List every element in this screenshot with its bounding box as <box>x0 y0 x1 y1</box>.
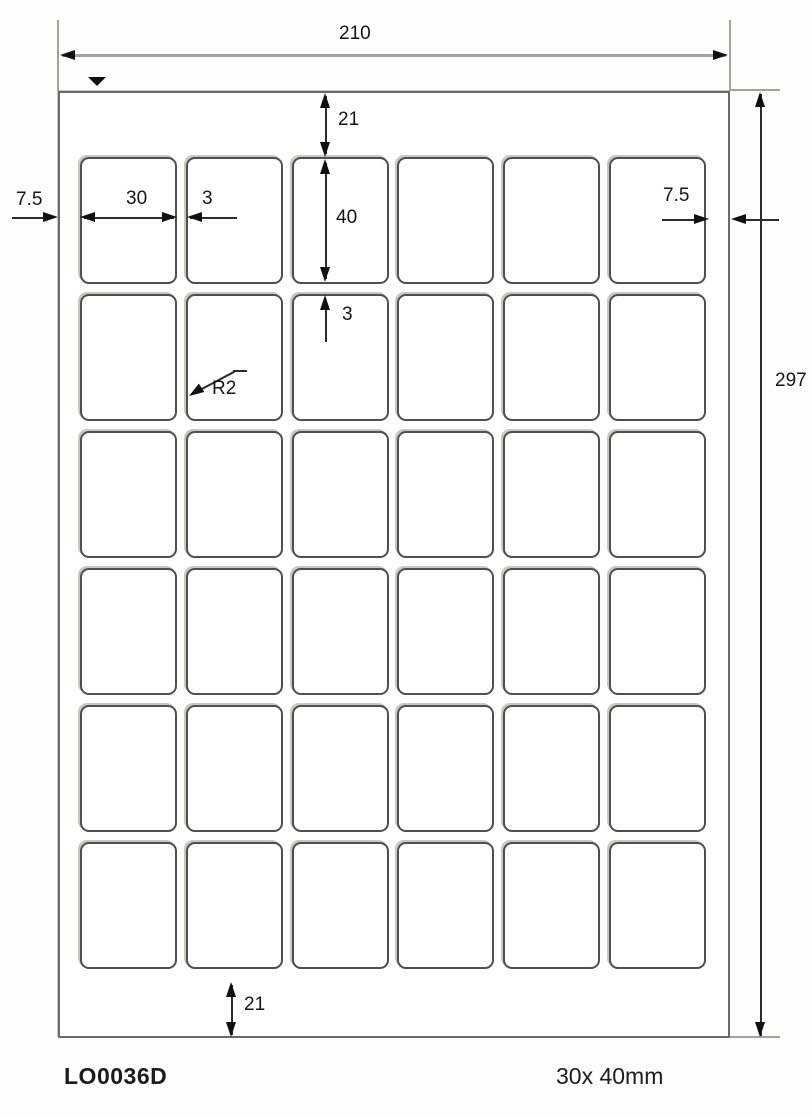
label-cell <box>397 568 494 695</box>
diagram-canvas: 210 297 21 40 3 30 3 7.5 7.5 21 R2 LO003… <box>0 0 812 1118</box>
arrowhead-left-icon <box>187 212 202 222</box>
dim-sheet-height-line <box>760 94 762 1036</box>
arrowhead-up-icon <box>320 295 330 310</box>
dim-margin-right-tail-line <box>746 219 779 221</box>
label-cell <box>186 431 283 558</box>
dim-col-gap-label: 3 <box>202 189 213 210</box>
dim-label-height-label: 40 <box>336 208 357 229</box>
dim-margin-bottom-label: 21 <box>244 995 265 1016</box>
dim-row-gap-label: 3 <box>342 305 353 326</box>
dim-margin-top-label: 21 <box>338 110 359 131</box>
arrowhead-left-icon <box>80 212 95 222</box>
dim-sheet-width-line <box>62 54 726 57</box>
arrowhead-down-icon <box>755 1022 765 1037</box>
label-cell <box>397 294 494 421</box>
label-cell <box>292 568 389 695</box>
label-cell <box>609 842 706 969</box>
label-cell <box>503 431 600 558</box>
label-cell <box>80 431 177 558</box>
label-cell <box>80 294 177 421</box>
label-cell <box>503 294 600 421</box>
arrowhead-left-icon <box>60 50 75 60</box>
label-cell <box>186 842 283 969</box>
label-cell <box>292 705 389 832</box>
arrowhead-up-icon <box>755 92 765 107</box>
product-code-text: LO0036D <box>64 1064 167 1089</box>
arrowhead-up-icon <box>226 982 236 997</box>
dim-label-width-label: 30 <box>126 189 147 210</box>
label-cell <box>186 568 283 695</box>
arrowhead-down-icon <box>320 267 330 282</box>
dim-sheet-width-label: 210 <box>339 24 371 45</box>
dim-margin-left-label: 7.5 <box>16 190 42 211</box>
extension-line-right <box>729 20 731 91</box>
arrowhead-right-icon <box>713 50 728 60</box>
label-cell <box>80 568 177 695</box>
label-cell <box>292 431 389 558</box>
label-cell <box>397 842 494 969</box>
label-cell <box>503 157 600 284</box>
dim-margin-right-line <box>662 219 695 221</box>
feed-mark-triangle-icon <box>88 77 106 86</box>
label-cell <box>503 568 600 695</box>
arrowhead-right-icon <box>43 212 58 222</box>
label-cell <box>186 705 283 832</box>
label-cell <box>397 157 494 284</box>
label-cell <box>80 842 177 969</box>
label-cell <box>609 705 706 832</box>
arrowhead-down-icon <box>226 1022 236 1037</box>
dim-corner-radius-label: R2 <box>212 379 236 400</box>
dim-label-height-line <box>325 163 327 279</box>
arrowhead-up-icon <box>320 93 330 108</box>
label-cell <box>503 842 600 969</box>
dim-sheet-height-label: 297 <box>775 371 807 392</box>
label-cell <box>609 431 706 558</box>
radius-leader-hook <box>233 370 247 372</box>
label-cell <box>292 294 389 421</box>
extension-line-top-right <box>730 89 780 91</box>
dim-margin-right-label: 7.5 <box>663 186 689 207</box>
label-cell <box>292 842 389 969</box>
label-cell <box>609 568 706 695</box>
dim-label-width-line <box>84 217 174 219</box>
arrowhead-down-icon <box>320 142 330 157</box>
label-cell <box>397 431 494 558</box>
extension-line-left <box>57 20 59 91</box>
arrowhead-left-icon <box>731 214 746 224</box>
label-cell <box>80 705 177 832</box>
arrowhead-up-icon <box>320 159 330 174</box>
label-cell <box>609 294 706 421</box>
dim-margin-left-line <box>12 217 46 219</box>
label-cell <box>186 294 283 421</box>
label-cell <box>397 705 494 832</box>
arrowhead-right-icon <box>694 214 709 224</box>
arrowhead-right-icon <box>162 212 177 222</box>
label-cell <box>503 705 600 832</box>
label-size-text: 30x 40mm <box>556 1064 663 1089</box>
